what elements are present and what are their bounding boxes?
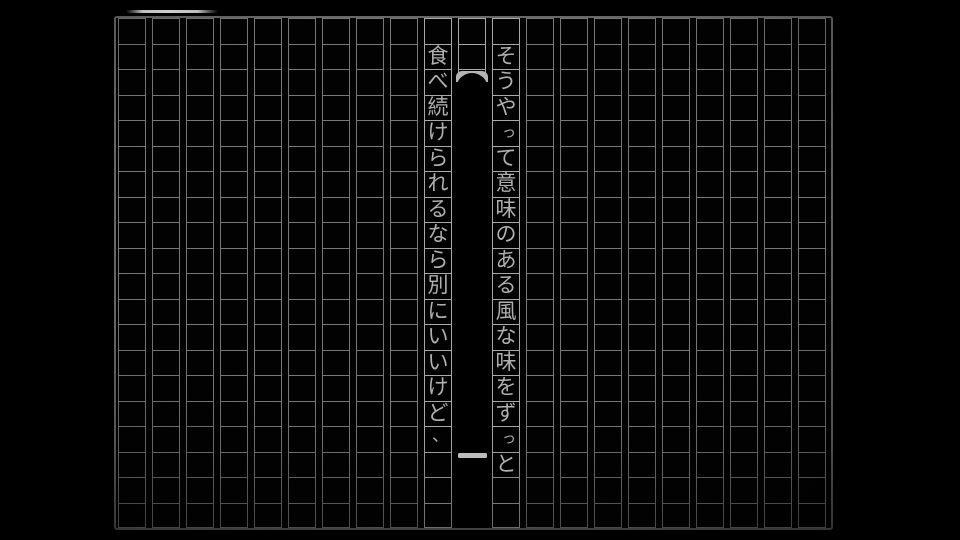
grid-cell	[663, 503, 689, 529]
grid-cell	[255, 197, 281, 223]
grid-cell	[255, 222, 281, 248]
grid-cell	[187, 248, 213, 274]
grid-cell	[187, 120, 213, 146]
grid-cell	[663, 452, 689, 478]
grid-cell	[119, 197, 145, 223]
grid-cell	[187, 452, 213, 478]
grid-cell	[595, 120, 621, 146]
grid-cell	[187, 18, 213, 44]
grid-cell	[697, 375, 723, 401]
grid-cell	[561, 273, 587, 299]
grid-cell	[187, 273, 213, 299]
grid-cell	[799, 69, 825, 95]
grid-cell	[799, 44, 825, 70]
grid-column	[356, 18, 384, 528]
grid-cell	[527, 350, 553, 376]
grid-cell	[527, 401, 553, 427]
grid-cell	[323, 503, 349, 529]
grid-cell	[357, 18, 383, 44]
manuscript-char: あ	[492, 248, 520, 274]
grid-cell	[255, 350, 281, 376]
grid-cell	[799, 171, 825, 197]
grid-cell	[391, 171, 417, 197]
grid-cell	[731, 452, 757, 478]
grid-column	[288, 18, 316, 528]
grid-cell	[153, 222, 179, 248]
grid-cell	[765, 146, 791, 172]
grid-cell	[663, 120, 689, 146]
grid-cell	[799, 503, 825, 529]
grid-cell	[255, 95, 281, 121]
grid-cell	[629, 452, 655, 478]
grid-cell	[119, 503, 145, 529]
grid-column	[560, 18, 588, 528]
grid-cell	[561, 146, 587, 172]
manuscript-char: や	[492, 95, 520, 121]
grid-cell	[527, 299, 553, 325]
grid-cell	[595, 171, 621, 197]
grid-cell	[221, 375, 247, 401]
game-screen: そうやって意味のある風な味をずっと食べ続けられるなら別にいいけど、	[0, 0, 960, 540]
grid-cell	[391, 197, 417, 223]
grid-cell	[697, 197, 723, 223]
grid-cell	[629, 69, 655, 95]
grid-cell	[799, 248, 825, 274]
grid-cell	[663, 426, 689, 452]
grid-cell	[221, 120, 247, 146]
grid-cell	[697, 44, 723, 70]
grid-cell	[153, 375, 179, 401]
grid-cell	[595, 375, 621, 401]
grid-cell	[119, 324, 145, 350]
grid-cell	[697, 324, 723, 350]
grid-cell	[731, 350, 757, 376]
grid-cell	[119, 222, 145, 248]
grid-cell	[221, 401, 247, 427]
manuscript-char: ら	[424, 146, 452, 172]
grid-cell	[119, 273, 145, 299]
grid-cell	[629, 273, 655, 299]
grid-cell	[119, 95, 145, 121]
grid-cell	[323, 44, 349, 70]
grid-cell	[731, 44, 757, 70]
grid-cell	[663, 146, 689, 172]
grid-cell	[255, 273, 281, 299]
grid-cell	[357, 44, 383, 70]
grid-cell	[561, 120, 587, 146]
grid-cell	[765, 69, 791, 95]
grid-cell	[289, 248, 315, 274]
grid-cell	[289, 146, 315, 172]
grid-cell	[595, 401, 621, 427]
grid-cell	[255, 426, 281, 452]
grid-cell	[221, 477, 247, 503]
grid-cell	[799, 477, 825, 503]
page-tab-highlight[interactable]	[126, 10, 218, 13]
grid-cell	[221, 222, 247, 248]
grid-cell	[289, 120, 315, 146]
grid-cell	[119, 44, 145, 70]
grid-cell	[663, 197, 689, 223]
grid-column	[254, 18, 282, 528]
grid-cell	[323, 375, 349, 401]
grid-cell	[119, 350, 145, 376]
grid-cell	[221, 44, 247, 70]
grid-cell	[663, 375, 689, 401]
grid-cell	[561, 18, 587, 44]
manuscript-char: れ	[424, 171, 452, 197]
grid-cell	[119, 299, 145, 325]
manuscript-char: を	[492, 375, 520, 401]
grid-column	[730, 18, 758, 528]
grid-cell	[289, 375, 315, 401]
grid-cell	[425, 18, 451, 44]
grid-cell	[697, 69, 723, 95]
grid-cell	[357, 171, 383, 197]
grid-cell	[799, 324, 825, 350]
grid-cell	[187, 69, 213, 95]
grid-cell	[731, 299, 757, 325]
grid-cell	[391, 426, 417, 452]
grid-cell	[765, 350, 791, 376]
grid-cell	[595, 503, 621, 529]
grid-cell	[799, 350, 825, 376]
grid-cell	[731, 120, 757, 146]
grid-cell	[289, 197, 315, 223]
grid-cell	[527, 44, 553, 70]
grid-cell	[323, 120, 349, 146]
grid-cell	[561, 44, 587, 70]
grid-cell	[765, 95, 791, 121]
grid-cell	[595, 324, 621, 350]
grid-cell	[391, 95, 417, 121]
grid-cell	[289, 477, 315, 503]
grid-cell	[391, 375, 417, 401]
grid-cell	[595, 69, 621, 95]
grid-column	[186, 18, 214, 528]
grid-cell	[595, 299, 621, 325]
grid-cell	[799, 18, 825, 44]
grid-cell	[765, 503, 791, 529]
grid-cell	[595, 18, 621, 44]
grid-cell	[765, 248, 791, 274]
grid-cell	[663, 477, 689, 503]
grid-cell	[799, 299, 825, 325]
grid-cell	[527, 146, 553, 172]
grid-cell	[289, 426, 315, 452]
grid-cell	[765, 273, 791, 299]
grid-cell	[323, 299, 349, 325]
grid-cell	[391, 18, 417, 44]
grid-cell	[289, 503, 315, 529]
grid-cell	[663, 222, 689, 248]
manuscript-char: そ	[492, 44, 520, 70]
grid-cell	[289, 350, 315, 376]
grid-cell	[595, 44, 621, 70]
grid-cell	[357, 375, 383, 401]
grid-cell	[119, 120, 145, 146]
grid-column	[764, 18, 792, 528]
grid-cell	[527, 503, 553, 529]
grid-cell	[731, 375, 757, 401]
grid-cell	[527, 120, 553, 146]
grid-cell	[221, 18, 247, 44]
grid-cell	[357, 248, 383, 274]
grid-cell	[663, 299, 689, 325]
manuscript-char: と	[492, 452, 520, 478]
grid-cell	[357, 222, 383, 248]
grid-cell	[221, 171, 247, 197]
grid-cell	[459, 18, 485, 44]
grid-cell	[731, 477, 757, 503]
grid-cell	[357, 69, 383, 95]
grid-cell	[391, 273, 417, 299]
grid-column	[220, 18, 248, 528]
grid-cell	[595, 95, 621, 121]
grid-cell	[731, 197, 757, 223]
grid-cell	[527, 273, 553, 299]
grid-cell	[527, 18, 553, 44]
grid-cell	[357, 95, 383, 121]
grid-cell	[663, 273, 689, 299]
grid-cell	[357, 452, 383, 478]
grid-cell	[799, 222, 825, 248]
grid-cell	[357, 401, 383, 427]
grid-cell	[527, 222, 553, 248]
grid-column	[118, 18, 146, 528]
manuscript-char: ど	[424, 401, 452, 427]
grid-cell	[153, 299, 179, 325]
grid-cell	[493, 477, 519, 503]
manuscript-char: け	[424, 120, 452, 146]
grid-cell	[561, 503, 587, 529]
grid-cell	[629, 171, 655, 197]
grid-cell	[765, 197, 791, 223]
grid-cell	[153, 95, 179, 121]
grid-column	[390, 18, 418, 528]
grid-cell	[629, 401, 655, 427]
grid-cell	[595, 197, 621, 223]
grid-cell	[459, 44, 485, 70]
grid-cell	[391, 452, 417, 478]
grid-cell	[357, 477, 383, 503]
grid-cell	[765, 222, 791, 248]
manuscript-char: 味	[492, 350, 520, 376]
manuscript-char: 続	[424, 95, 452, 121]
grid-cell	[663, 350, 689, 376]
grid-cell	[255, 248, 281, 274]
grid-cell	[493, 18, 519, 44]
grid-cell	[187, 222, 213, 248]
grid-cell	[187, 95, 213, 121]
grid-cell	[561, 350, 587, 376]
grid-cell	[629, 324, 655, 350]
grid-cell	[561, 375, 587, 401]
grid-cell	[629, 146, 655, 172]
grid-cell	[731, 503, 757, 529]
grid-cell	[323, 69, 349, 95]
grid-cell	[153, 197, 179, 223]
grid-cell	[629, 477, 655, 503]
grid-cell	[323, 18, 349, 44]
grid-cell	[731, 324, 757, 350]
grid-cell	[561, 197, 587, 223]
grid-cell	[391, 401, 417, 427]
manuscript-char: る	[424, 197, 452, 223]
grid-cell	[153, 324, 179, 350]
grid-cell	[493, 503, 519, 529]
grid-cell	[153, 401, 179, 427]
manuscript-char: に	[424, 299, 452, 325]
grid-cell	[357, 120, 383, 146]
grid-cell	[323, 222, 349, 248]
grid-cell	[153, 146, 179, 172]
grid-cell	[629, 426, 655, 452]
grid-cell	[697, 426, 723, 452]
grid-cell	[221, 350, 247, 376]
grid-cell	[221, 197, 247, 223]
manuscript-char: う	[492, 69, 520, 95]
grid-cell	[731, 146, 757, 172]
grid-cell	[765, 44, 791, 70]
grid-cell	[289, 171, 315, 197]
grid-cell	[697, 222, 723, 248]
grid-cell	[697, 146, 723, 172]
grid-column	[662, 18, 690, 528]
grid-cell	[663, 248, 689, 274]
grid-cell	[153, 426, 179, 452]
grid-cell	[731, 171, 757, 197]
grid-cell	[697, 95, 723, 121]
grid-cell	[153, 18, 179, 44]
grid-cell	[527, 69, 553, 95]
grid-cell	[221, 324, 247, 350]
grid-cell	[153, 503, 179, 529]
grid-cell	[221, 273, 247, 299]
grid-cell	[697, 273, 723, 299]
grid-cell	[391, 503, 417, 529]
grid-cell	[391, 299, 417, 325]
grid-cell	[561, 222, 587, 248]
grid-cell	[527, 452, 553, 478]
grid-cell	[153, 350, 179, 376]
grid-cell	[731, 69, 757, 95]
grid-cell	[697, 350, 723, 376]
grid-cell	[221, 503, 247, 529]
grid-cell	[187, 197, 213, 223]
grid-cell	[255, 69, 281, 95]
grid-cell	[119, 426, 145, 452]
grid-cell	[119, 375, 145, 401]
grid-cell	[221, 69, 247, 95]
grid-cell	[289, 69, 315, 95]
grid-cell	[323, 95, 349, 121]
grid-cell	[187, 299, 213, 325]
grid-cell	[255, 375, 281, 401]
grid-cell	[663, 95, 689, 121]
grid-cell	[357, 350, 383, 376]
grid-cell	[527, 171, 553, 197]
grid-cell	[221, 146, 247, 172]
grid-cell	[663, 44, 689, 70]
grid-cell	[765, 375, 791, 401]
grid-cell	[255, 324, 281, 350]
grid-cell	[323, 426, 349, 452]
grid-cell	[187, 350, 213, 376]
grid-cell	[289, 299, 315, 325]
grid-cell	[289, 452, 315, 478]
grid-cell	[357, 273, 383, 299]
grid-cell	[561, 426, 587, 452]
grid-cell	[221, 299, 247, 325]
grid-cell	[391, 120, 417, 146]
grid-cell	[629, 248, 655, 274]
grid-cell	[595, 477, 621, 503]
grid-cell	[765, 401, 791, 427]
grid-cell	[153, 44, 179, 70]
grid-cell	[765, 171, 791, 197]
manuscript-char: 、	[424, 426, 452, 452]
grid-cell	[527, 375, 553, 401]
grid-cell	[153, 477, 179, 503]
grid-cell	[153, 69, 179, 95]
grid-cell	[561, 324, 587, 350]
grid-cell	[289, 18, 315, 44]
grid-cell	[663, 401, 689, 427]
grid-cell	[391, 350, 417, 376]
grid-cell	[187, 477, 213, 503]
censor-bottom-cap	[458, 453, 487, 459]
grid-cell	[119, 401, 145, 427]
grid-cell	[663, 69, 689, 95]
grid-cell	[663, 18, 689, 44]
grid-cell	[765, 18, 791, 44]
grid-cell	[765, 477, 791, 503]
grid-cell	[629, 299, 655, 325]
grid-cell	[595, 222, 621, 248]
grid-cell	[289, 324, 315, 350]
grid-cell	[323, 197, 349, 223]
manuscript-char: 味	[492, 197, 520, 223]
grid-cell	[799, 452, 825, 478]
grid-cell	[357, 146, 383, 172]
grid-cell	[527, 197, 553, 223]
grid-cell	[187, 426, 213, 452]
grid-cell	[527, 95, 553, 121]
grid-cell	[527, 477, 553, 503]
grid-cell	[289, 401, 315, 427]
grid-cell	[357, 299, 383, 325]
grid-cell	[289, 95, 315, 121]
grid-cell	[323, 171, 349, 197]
grid-cell	[697, 171, 723, 197]
grid-cell	[255, 120, 281, 146]
grid-cell	[595, 452, 621, 478]
grid-cell	[357, 197, 383, 223]
grid-cell	[629, 18, 655, 44]
grid-cell	[391, 477, 417, 503]
grid-cell	[119, 69, 145, 95]
grid-cell	[561, 95, 587, 121]
grid-cell	[527, 248, 553, 274]
grid-cell	[561, 452, 587, 478]
grid-cell	[765, 426, 791, 452]
grid-cell	[595, 248, 621, 274]
grid-cell	[561, 401, 587, 427]
grid-cell	[255, 477, 281, 503]
grid-cell	[255, 452, 281, 478]
grid-cell	[629, 197, 655, 223]
